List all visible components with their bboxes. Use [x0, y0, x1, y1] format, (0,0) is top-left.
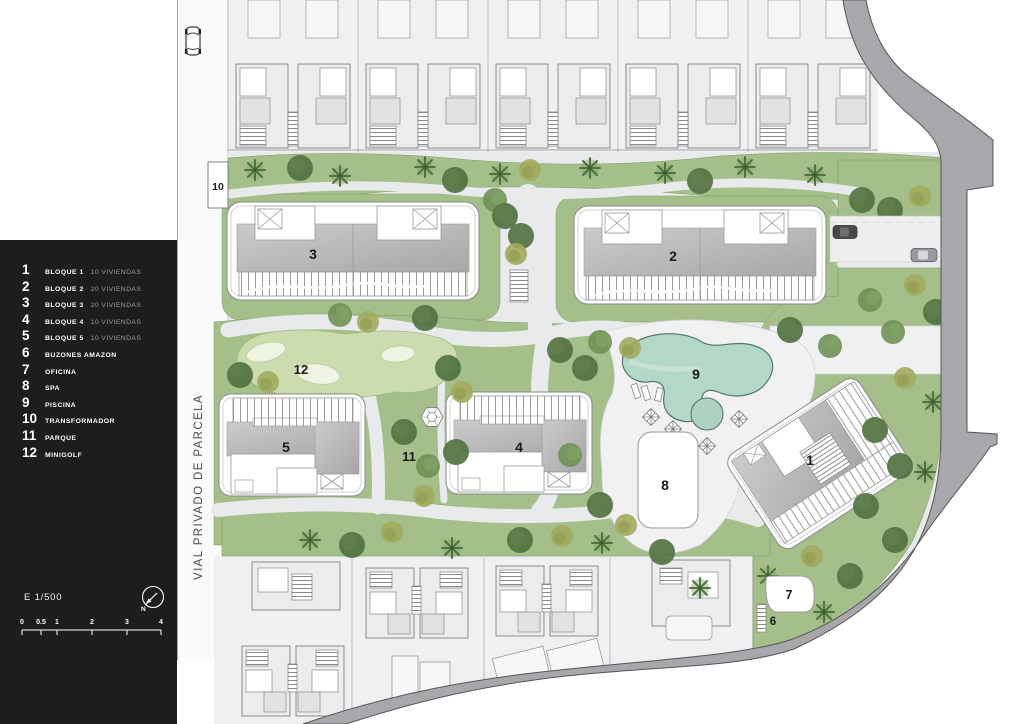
car-street [185, 27, 201, 55]
building-block-2 [574, 206, 826, 304]
legend-panel: 1BLOQUE 110 VIVIENDAS 2BLOQUE 220 VIVIEN… [0, 240, 177, 724]
legend-item: 2BLOQUE 220 VIVIENDAS [0, 279, 177, 296]
label-block-4: 4 [515, 439, 523, 455]
label-minigolf: 12 [294, 362, 308, 377]
legend-number: 1 [22, 262, 45, 277]
legend-item: 1BLOQUE 110 VIVIENDAS [0, 262, 177, 279]
label-park: 11 [402, 449, 416, 464]
scale-bar: 0 0.5 1 2 3 4 [0, 610, 177, 646]
street-label: VIAL PRIVADO DE PARCELA [193, 394, 205, 580]
building-block-3 [227, 202, 479, 300]
legend-label: BLOQUE 4 [45, 319, 84, 326]
building-block-5 [219, 394, 365, 496]
legend-label: BLOQUE 1 [45, 269, 84, 276]
legend-label: MINIGOLF [45, 452, 82, 459]
legend-number: 7 [22, 362, 45, 377]
label-mailboxes: 6 [770, 616, 776, 628]
legend-number: 5 [22, 328, 45, 343]
legend-list: 1BLOQUE 110 VIVIENDAS 2BLOQUE 220 VIVIEN… [0, 262, 177, 461]
stairs [510, 270, 528, 302]
legend-label: OFICINA [45, 369, 76, 376]
legend-number: 2 [22, 279, 45, 294]
label-block-1: 1 [806, 452, 814, 468]
legend-number: 9 [22, 395, 45, 410]
legend-label: BLOQUE 2 [45, 286, 84, 293]
legend-number: 4 [22, 312, 45, 327]
legend-item: 6BUZONES AMAZON [0, 345, 177, 362]
label-block-5: 5 [282, 439, 290, 455]
legend-detail: 20 VIVIENDAS [91, 286, 142, 293]
legend-number: 8 [22, 378, 45, 393]
car-light [911, 249, 937, 262]
scale-tick: 0.5 [36, 619, 46, 626]
legend-number: 11 [22, 428, 45, 443]
legend-label: PISCINA [45, 402, 76, 409]
scale-tick: 2 [90, 619, 94, 626]
legend-item: 10TRANSFORMADOR [0, 411, 177, 428]
label-block-3: 3 [309, 246, 317, 262]
label-office: 7 [786, 588, 793, 602]
legend-item: 3BLOQUE 320 VIVIENDAS [0, 295, 177, 312]
legend-item: 4BLOQUE 410 VIVIENDAS [0, 312, 177, 329]
scale-text: E 1/500 [24, 592, 62, 603]
legend-detail: 10 VIVIENDAS [91, 269, 142, 276]
scale-tick: 4 [159, 619, 163, 626]
car-dark [833, 226, 857, 239]
legend-detail: 10 VIVIENDAS [91, 319, 142, 326]
label-block-2: 2 [669, 248, 677, 264]
legend-label: PARQUE [45, 435, 77, 442]
legend-item: 12MINIGOLF [0, 445, 177, 462]
legend-label: BLOQUE 5 [45, 335, 84, 342]
legend-label: BUZONES AMAZON [45, 352, 117, 359]
legend-item: 8SPA [0, 378, 177, 395]
legend-number: 3 [22, 295, 45, 310]
amazon-mailboxes [757, 604, 766, 632]
legend-item: 5BLOQUE 510 VIVIENDAS [0, 328, 177, 345]
legend-label: TRANSFORMADOR [45, 418, 115, 425]
legend-item: 11PARQUE [0, 428, 177, 445]
scale-tick: 3 [125, 619, 129, 626]
site-plan-page: 3 2 5 4 1 9 8 12 11 10 7 6 VIAL PRIVADO … [0, 0, 1024, 724]
scale-tick: 0 [20, 619, 24, 626]
neighbour-houses-top [228, 0, 878, 162]
legend-label: BLOQUE 3 [45, 302, 84, 309]
label-pool: 9 [692, 366, 700, 382]
legend-item: 7OFICINA [0, 362, 177, 379]
legend-number: 12 [22, 445, 45, 460]
legend-detail: 10 VIVIENDAS [91, 335, 142, 342]
scale-tick: 1 [55, 619, 59, 626]
legend-item: 9PISCINA [0, 395, 177, 412]
access-road [830, 216, 948, 262]
legend-number: 6 [22, 345, 45, 360]
label-spa: 8 [661, 477, 669, 493]
label-transformer: 10 [212, 181, 224, 193]
legend-detail: 20 VIVIENDAS [91, 302, 142, 309]
legend-label: SPA [45, 385, 60, 392]
legend-number: 10 [22, 411, 45, 426]
